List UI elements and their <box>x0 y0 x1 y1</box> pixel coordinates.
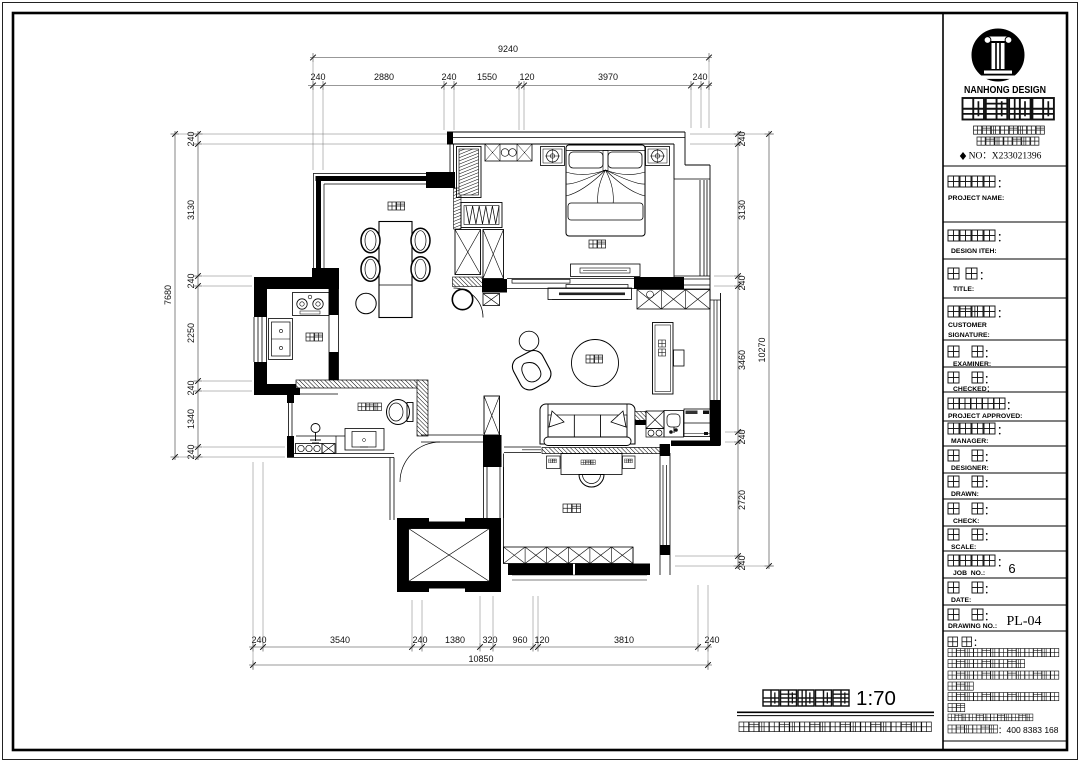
svg-text:1340: 1340 <box>186 409 196 429</box>
svg-text:：: ： <box>1006 400 1017 412</box>
svg-text:TITLE:: TITLE: <box>953 286 974 293</box>
svg-text:PL-04: PL-04 <box>1007 614 1042 629</box>
svg-text:：: ： <box>997 425 1008 437</box>
svg-text:：: ： <box>984 348 995 360</box>
svg-text:3460: 3460 <box>737 350 747 370</box>
svg-text:MANAGER:: MANAGER: <box>951 438 988 445</box>
svg-text:240: 240 <box>704 635 719 645</box>
svg-text:SIGNATURE:: SIGNATURE: <box>948 332 990 339</box>
svg-text:240: 240 <box>737 555 747 570</box>
svg-text:：: ： <box>997 557 1008 569</box>
svg-text:240: 240 <box>737 131 747 146</box>
svg-text:SCALE:: SCALE: <box>951 544 976 551</box>
svg-text:2880: 2880 <box>374 72 394 82</box>
svg-text:240: 240 <box>692 72 707 82</box>
svg-text:3970: 3970 <box>598 72 618 82</box>
svg-text:2720: 2720 <box>737 490 747 510</box>
svg-text:240: 240 <box>186 273 196 288</box>
svg-text:3130: 3130 <box>186 200 196 220</box>
svg-text:240: 240 <box>441 72 456 82</box>
svg-text:10270: 10270 <box>757 337 767 362</box>
svg-text:240: 240 <box>186 380 196 395</box>
svg-text:：: ： <box>997 232 1008 244</box>
svg-text:PROJECT NAME:: PROJECT NAME: <box>948 195 1004 202</box>
svg-text:DATE:: DATE: <box>951 597 971 604</box>
svg-text:3130: 3130 <box>737 200 747 220</box>
svg-text:DESIGN ITEH:: DESIGN ITEH: <box>951 248 997 255</box>
svg-text:：: ： <box>979 270 990 282</box>
svg-text:CHECKED：: CHECKED： <box>953 386 993 393</box>
svg-text:960: 960 <box>512 635 527 645</box>
svg-text:CUSTOMER: CUSTOMER <box>948 322 987 329</box>
svg-text:：: ： <box>984 505 995 517</box>
svg-text:9240: 9240 <box>498 44 518 54</box>
svg-text:：: ： <box>997 178 1008 190</box>
svg-text:DESIGNER:: DESIGNER: <box>951 465 989 472</box>
svg-text:DRAWING NO.:: DRAWING NO.: <box>948 623 997 630</box>
svg-text:240: 240 <box>186 444 196 459</box>
svg-text:240: 240 <box>412 635 427 645</box>
svg-text:1380: 1380 <box>445 635 465 645</box>
svg-text:CHECK:: CHECK: <box>953 518 979 525</box>
svg-text:：: ： <box>984 452 995 464</box>
svg-text:240: 240 <box>737 275 747 290</box>
svg-text:240: 240 <box>186 131 196 146</box>
svg-text:3810: 3810 <box>614 635 634 645</box>
svg-text:120: 120 <box>534 635 549 645</box>
svg-text:：: ： <box>984 478 995 490</box>
svg-text:7680: 7680 <box>163 285 173 305</box>
svg-text:：: ： <box>984 531 995 543</box>
svg-text:：: ： <box>997 308 1008 320</box>
svg-text:6: 6 <box>1008 561 1015 576</box>
svg-text:JOB NO.:: JOB NO.: <box>953 570 985 577</box>
svg-text:1:70: 1:70 <box>856 687 896 710</box>
svg-text:：400 8383 168: ：400 8383 168 <box>998 725 1059 735</box>
svg-text:120: 120 <box>519 72 534 82</box>
svg-text:PROJECT APPROVED:: PROJECT APPROVED: <box>948 413 1022 420</box>
svg-text:320: 320 <box>482 635 497 645</box>
svg-text:2250: 2250 <box>186 323 196 343</box>
svg-text:240: 240 <box>737 429 747 444</box>
svg-text:：: ： <box>973 638 983 649</box>
svg-text:10850: 10850 <box>468 654 493 664</box>
svg-text:：: ： <box>984 611 995 623</box>
svg-text:240: 240 <box>310 72 325 82</box>
svg-text:NANHONG DESIGN: NANHONG DESIGN <box>964 84 1046 96</box>
svg-text:240: 240 <box>251 635 266 645</box>
svg-text:：: ： <box>984 374 995 386</box>
svg-text:EXAMINER:: EXAMINER: <box>953 361 991 368</box>
svg-text:DRAWN:: DRAWN: <box>951 491 979 498</box>
svg-text:1550: 1550 <box>477 72 497 82</box>
svg-text:NO：X233021396: NO：X233021396 <box>969 152 1042 162</box>
svg-text:：: ： <box>984 584 995 596</box>
svg-text:3540: 3540 <box>330 635 350 645</box>
